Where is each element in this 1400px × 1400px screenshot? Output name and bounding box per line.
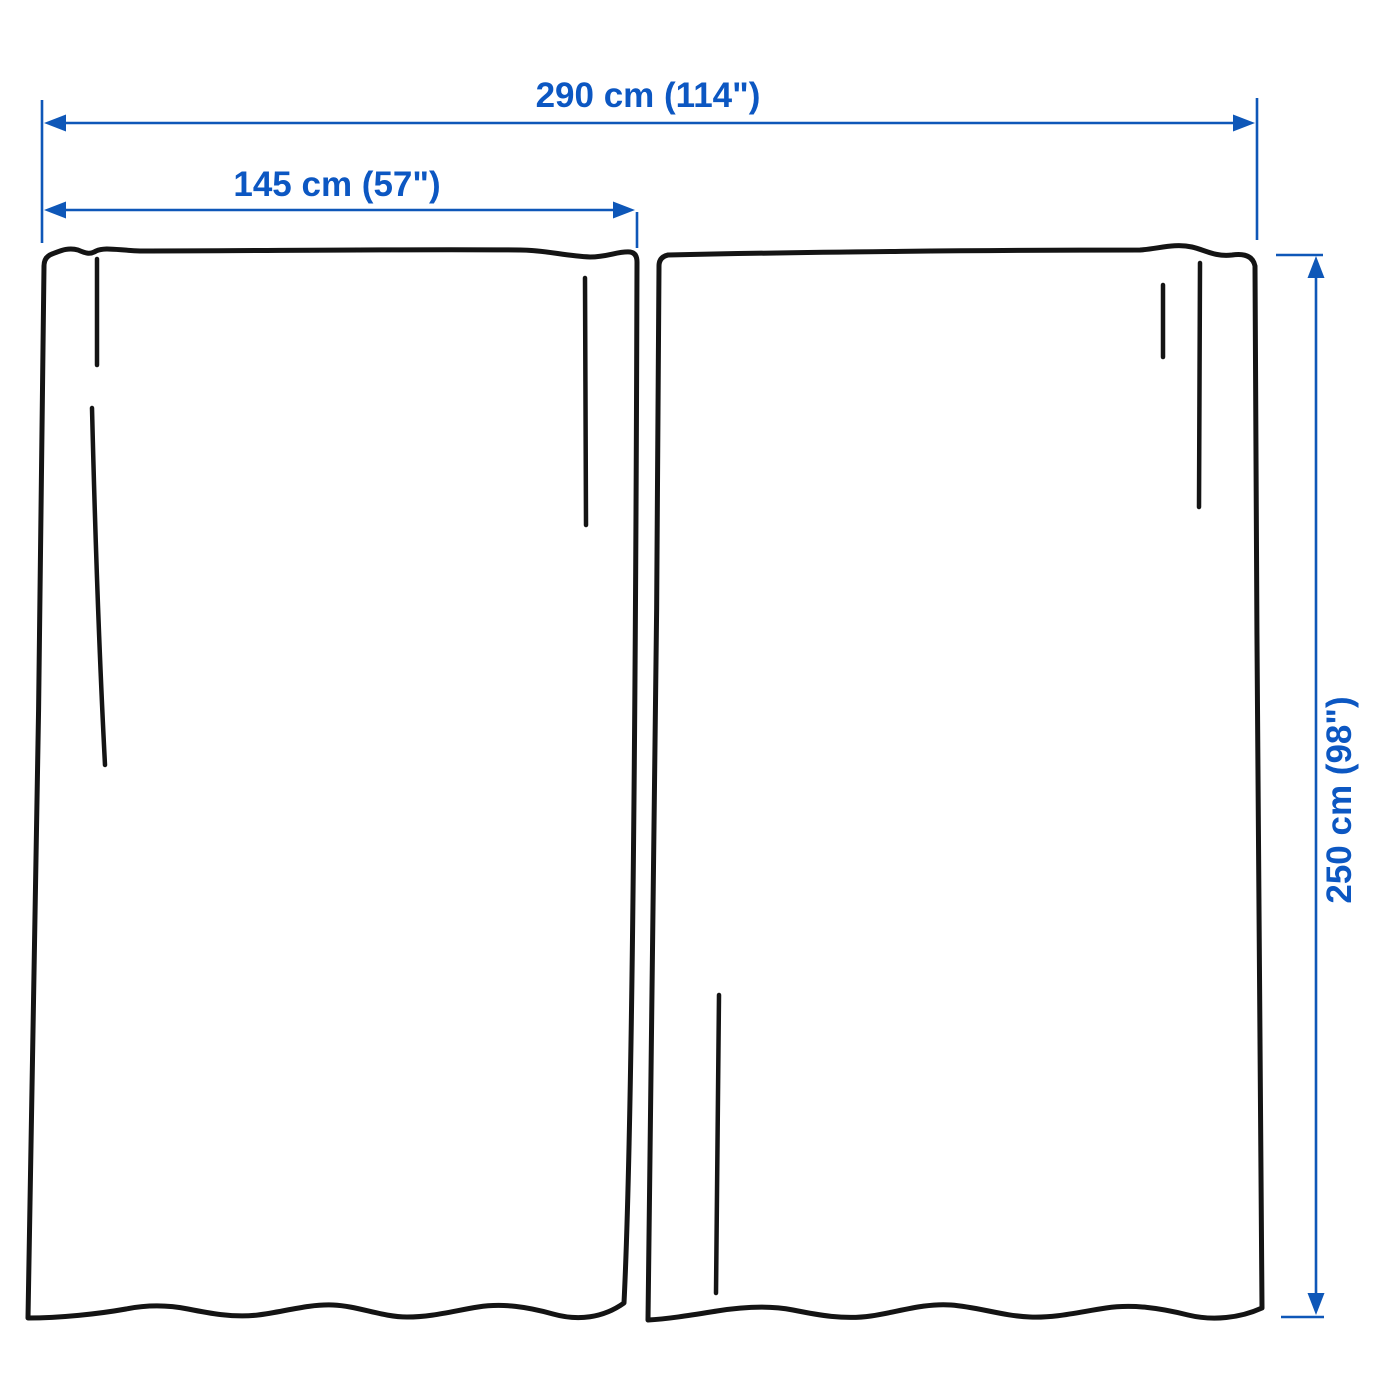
diagram-canvas: 290 cm (114") 145 cm (57") 250 cm (98") <box>0 0 1400 1400</box>
curtain-panel-left <box>28 249 637 1318</box>
curtain-panels <box>28 246 1262 1320</box>
dimension-total-width: 290 cm (114") <box>44 76 1255 132</box>
arrow-right-icon <box>1233 115 1255 132</box>
arrow-right-icon <box>613 202 635 219</box>
dimension-label-panel-width: 145 cm (57") <box>233 165 440 204</box>
dimension-label-total-width: 290 cm (114") <box>536 76 761 115</box>
fold-line <box>1199 263 1200 507</box>
curtain-panel-right <box>648 246 1262 1320</box>
fold-line <box>716 995 719 1293</box>
arrow-up-icon <box>1308 256 1325 278</box>
dimension-panel-height: 250 cm (98") <box>1308 256 1360 1315</box>
dimension-panel-width: 145 cm (57") <box>44 165 635 219</box>
arrow-left-icon <box>44 202 66 219</box>
arrow-down-icon <box>1308 1293 1325 1315</box>
arrow-left-icon <box>44 115 66 132</box>
curtain-dimension-diagram: 290 cm (114") 145 cm (57") 250 cm (98") <box>0 0 1400 1400</box>
fold-line <box>585 278 586 525</box>
dimension-label-panel-height: 250 cm (98") <box>1320 696 1359 903</box>
